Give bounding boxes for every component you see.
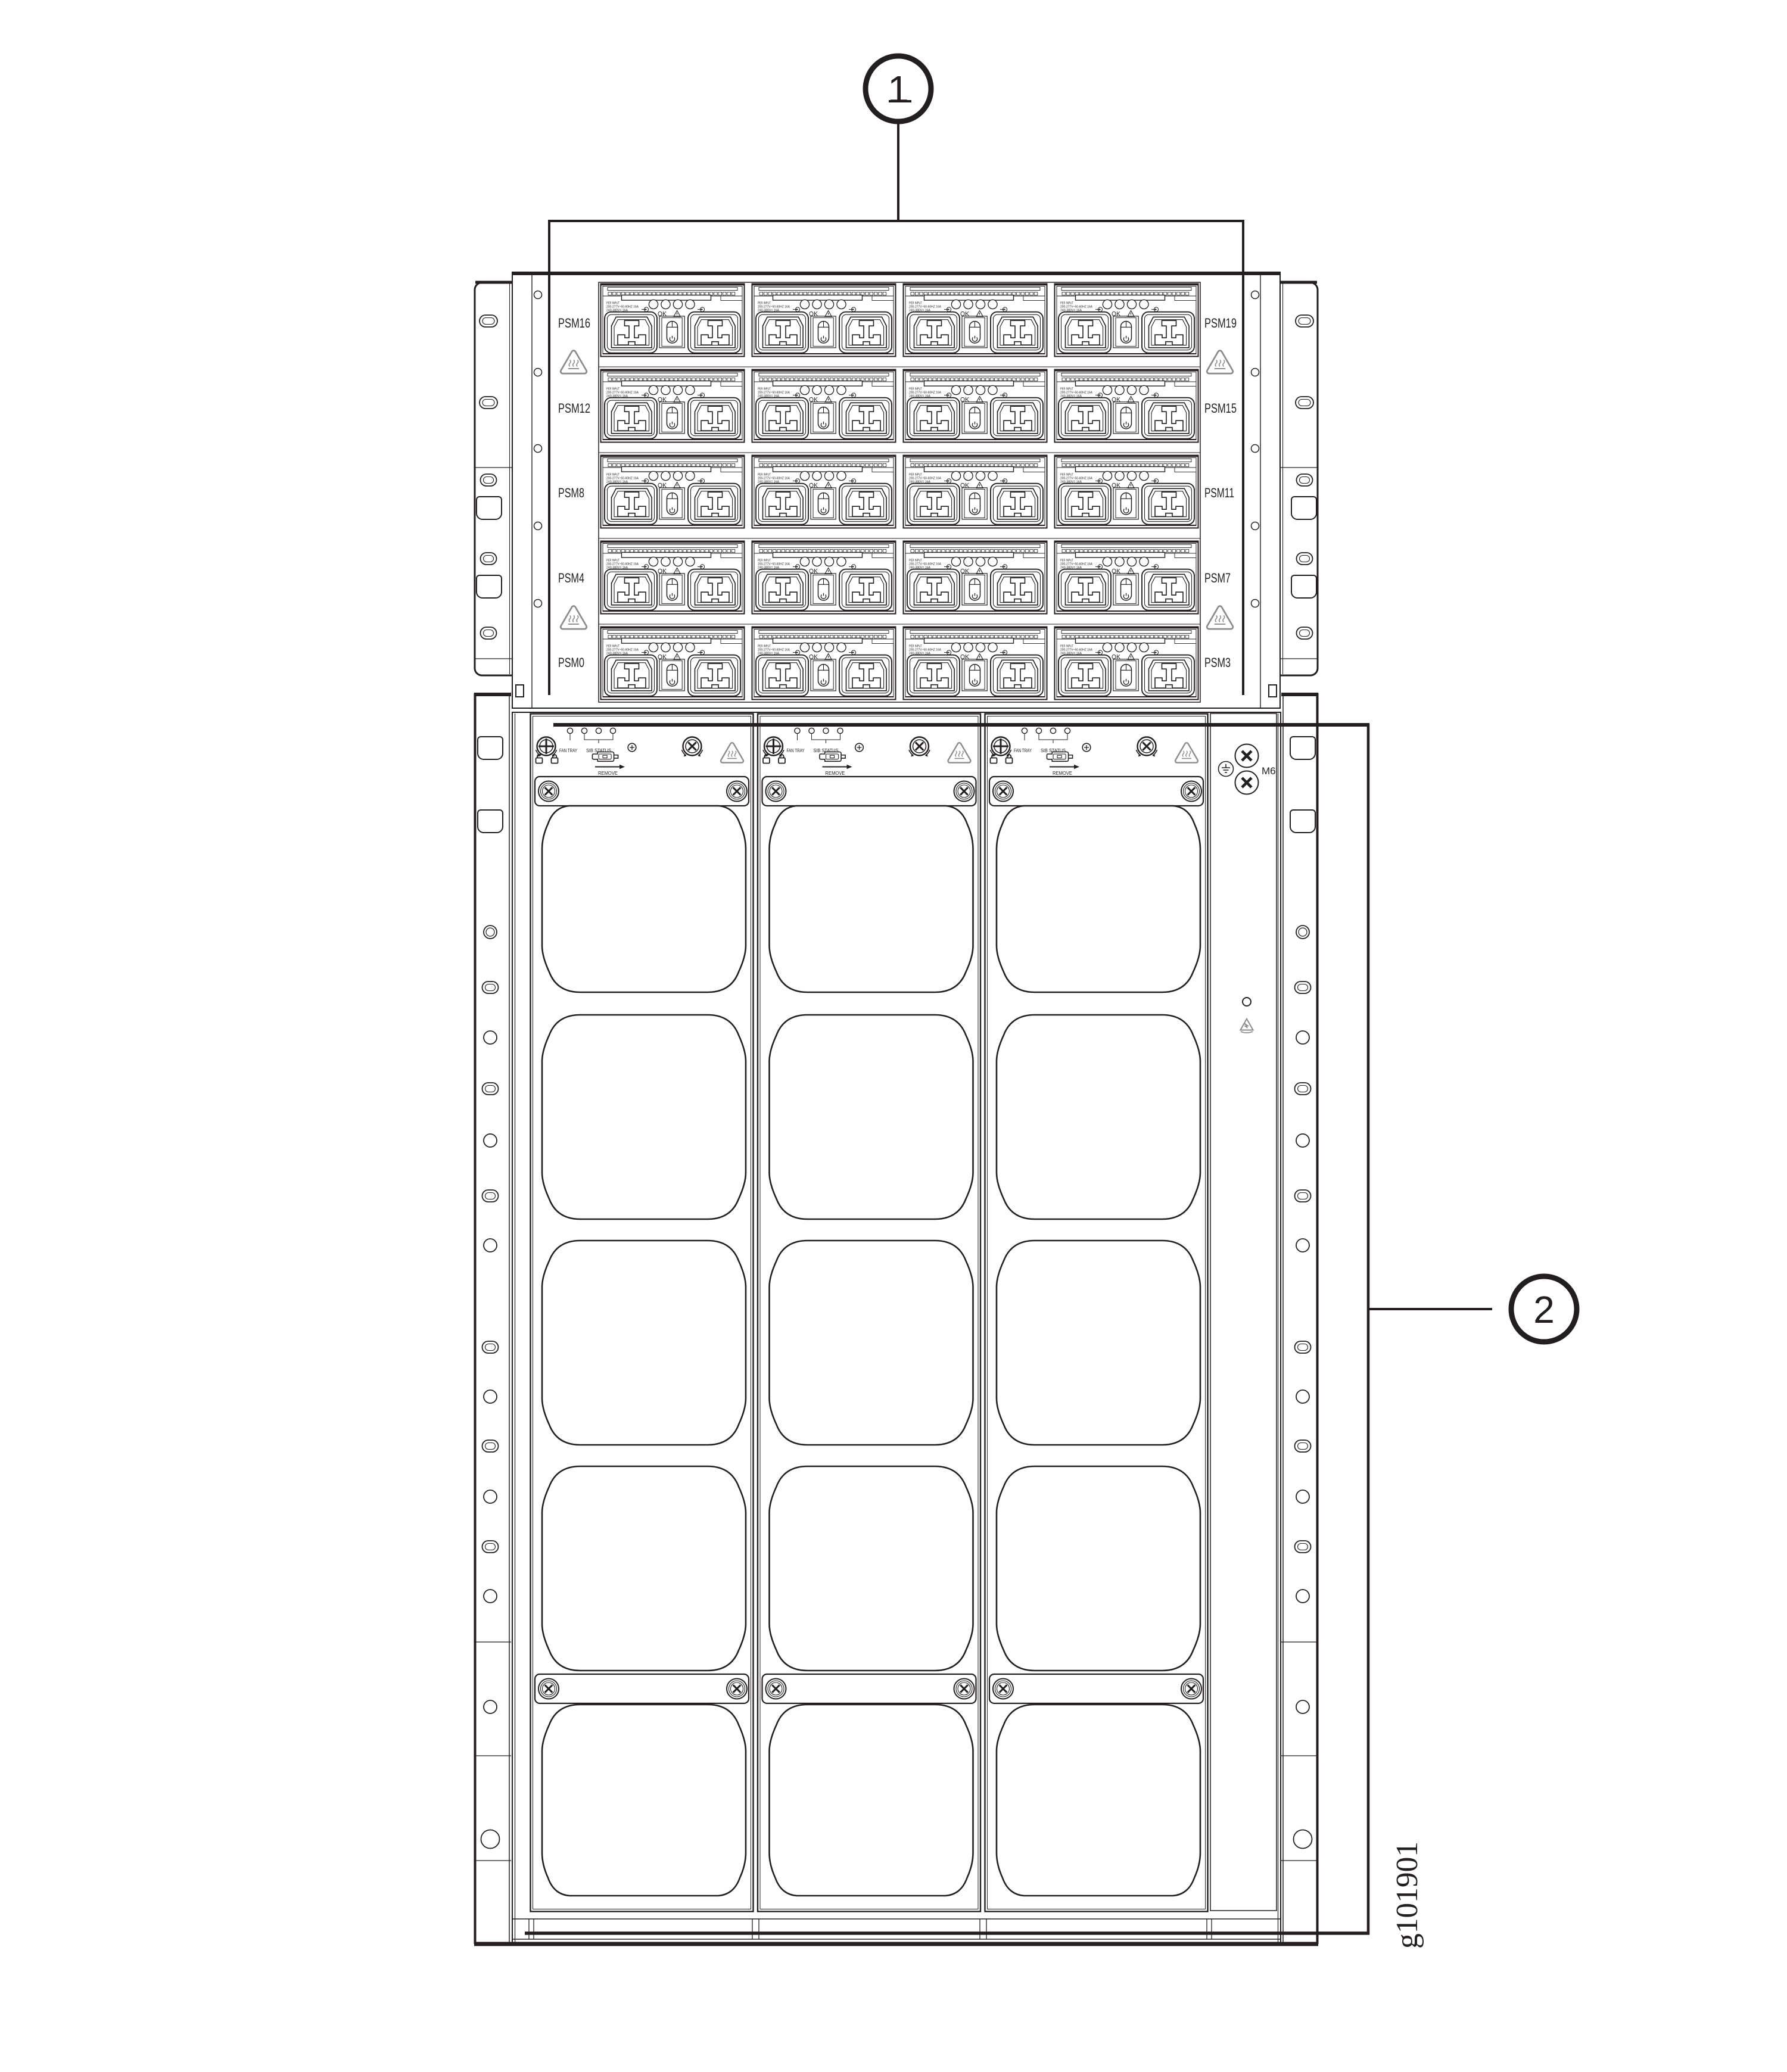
svg-text:PSM12: PSM12	[558, 401, 590, 416]
svg-text:g101901: g101901	[1390, 1842, 1424, 1949]
svg-text:PSM0: PSM0	[558, 655, 584, 670]
svg-text:PSM3: PSM3	[1204, 655, 1231, 670]
svg-text:PSM15: PSM15	[1204, 401, 1237, 416]
svg-text:PSM11: PSM11	[1204, 485, 1234, 500]
svg-text:PSM19: PSM19	[1204, 316, 1237, 331]
svg-text:PSM4: PSM4	[558, 571, 584, 585]
svg-text:PSM8: PSM8	[558, 485, 584, 500]
svg-text:PSM16: PSM16	[558, 316, 590, 331]
svg-text:M6: M6	[1262, 765, 1276, 777]
svg-text:PSM7: PSM7	[1204, 571, 1231, 585]
svg-text:2: 2	[1533, 1288, 1555, 1331]
svg-text:1: 1	[888, 68, 909, 111]
